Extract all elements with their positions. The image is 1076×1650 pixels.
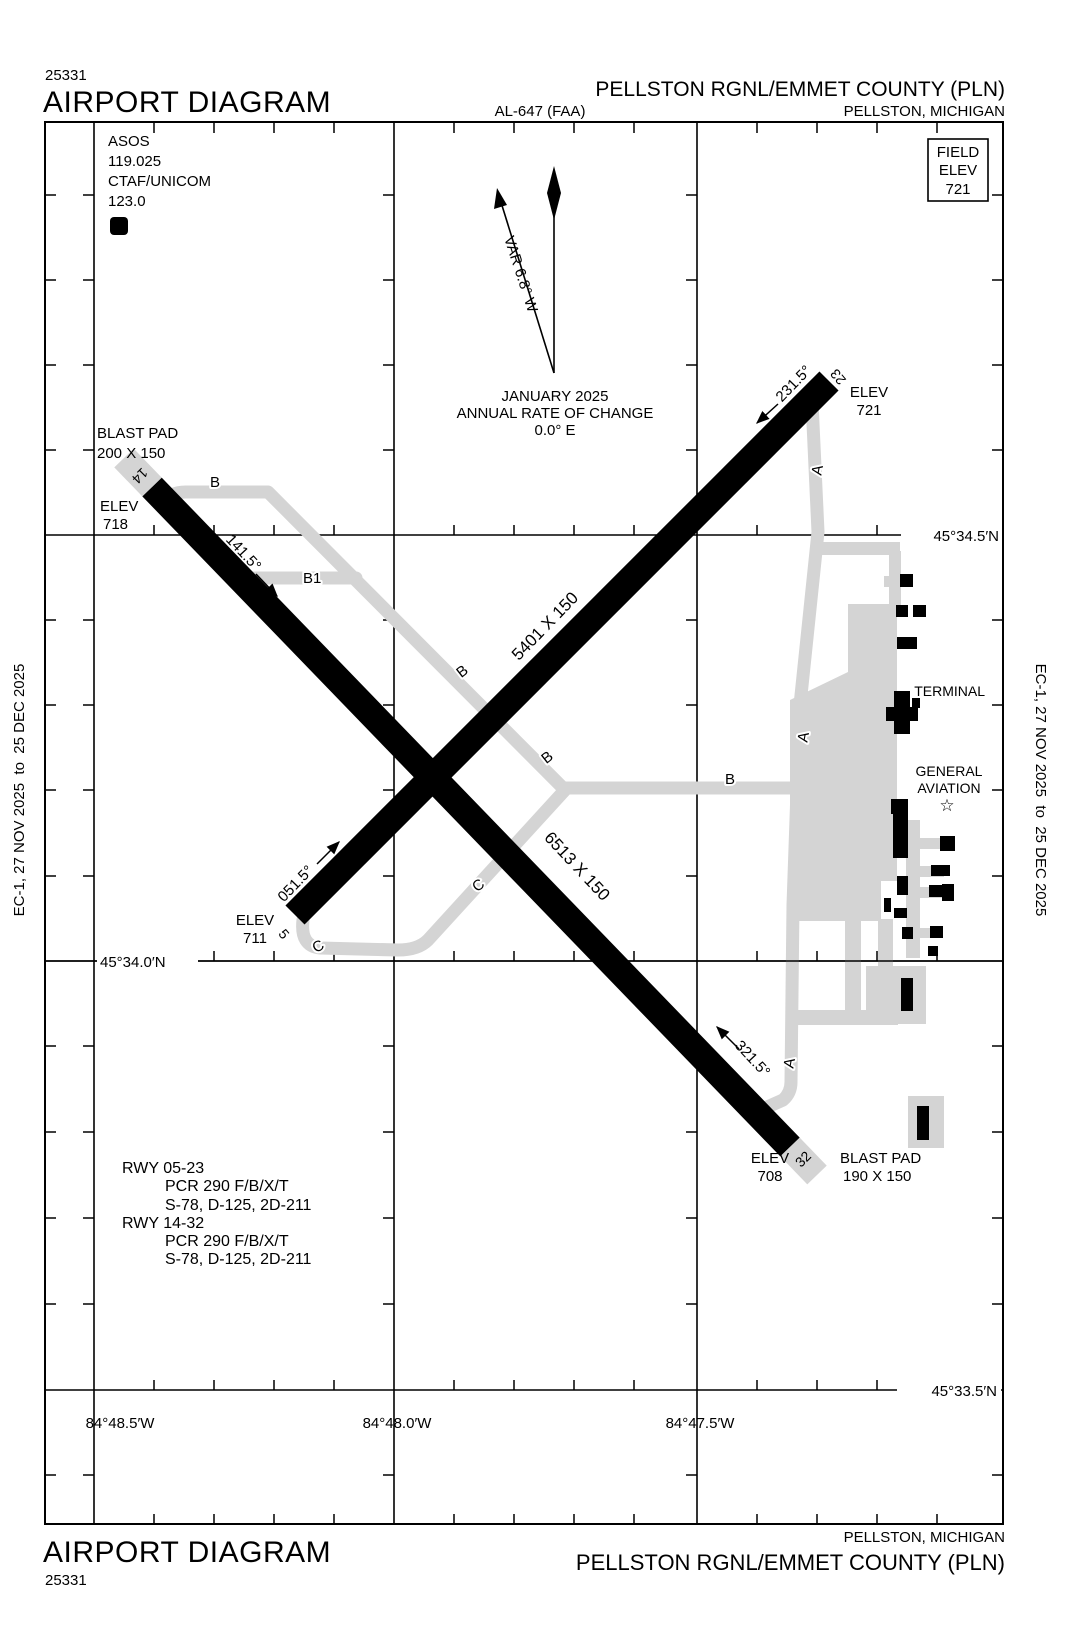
taxiway-b-label: B xyxy=(210,474,220,491)
rate-of-change-value: 0.0° E xyxy=(534,422,575,439)
building xyxy=(894,908,907,918)
ctaf-frequency: 123.0 xyxy=(108,193,146,210)
footer-airport: PELLSTON RGNL/EMMET COUNTY (PLN) xyxy=(576,1550,1005,1575)
building xyxy=(896,605,908,617)
apron-road xyxy=(790,1010,898,1025)
comms-block: ASOS 119.025 CTAF/UNICOM 123.0 D xyxy=(108,133,211,235)
lon-label-48-5: 84°48.5′W xyxy=(86,1415,156,1432)
left-margin-note: EC-1, 27 NOV 2025 to 25 DEC 2025 xyxy=(11,664,28,917)
general-aviation-label-1: GENERAL xyxy=(916,763,983,779)
chart-code: 25331 xyxy=(45,67,87,84)
ctaf-unicom-label: CTAF/UNICOM xyxy=(108,173,211,190)
apron-road xyxy=(845,919,861,1011)
taxiway-labels: A A A B B B B B1 C C xyxy=(210,464,827,1070)
rwy-0523-codes: S-78, D-125, 2D-211 xyxy=(165,1197,312,1214)
field-elev-l2: ELEV xyxy=(939,162,977,179)
blast-pad-14-label: BLAST PAD xyxy=(97,425,178,442)
elev-14-value: 718 xyxy=(103,516,128,533)
procedure-id: AL-647 (FAA) xyxy=(495,103,586,120)
taxiway-a-label: A xyxy=(808,464,826,477)
airport-name: PELLSTON RGNL/EMMET COUNTY (PLN) xyxy=(595,78,1005,101)
building xyxy=(928,946,938,956)
building xyxy=(913,605,926,617)
runway-number-5: 5 xyxy=(275,926,292,942)
rwy-1432-title: RWY 14-32 xyxy=(122,1215,204,1232)
building xyxy=(891,799,908,814)
airport-city: PELLSTON, MICHIGAN xyxy=(844,103,1005,120)
footer-chart-code: 25331 xyxy=(45,1572,87,1589)
apron-road xyxy=(884,576,898,587)
runway-data-block: RWY 05-23 PCR 290 F/B/X/T S-78, D-125, 2… xyxy=(122,1160,312,1268)
apron-road xyxy=(882,639,896,650)
lat-label-34-5: 45°34.5′N xyxy=(933,528,999,545)
page-title: AIRPORT DIAGRAM xyxy=(43,86,331,119)
building xyxy=(917,1106,929,1140)
true-north-arrowhead xyxy=(547,166,561,220)
footer-title: AIRPORT DIAGRAM xyxy=(43,1536,331,1569)
terminal-label: TERMINAL xyxy=(914,683,985,699)
building xyxy=(884,898,891,912)
footer-city: PELLSTON, MICHIGAN xyxy=(844,1529,1005,1546)
general-aviation-label-2: AVIATION xyxy=(917,780,980,796)
building xyxy=(901,978,913,1011)
elev-14-label: ELEV xyxy=(100,498,138,515)
building xyxy=(929,885,942,897)
building xyxy=(930,926,943,938)
lon-label-47-5: 84°47.5′W xyxy=(666,1415,736,1432)
terminal-building xyxy=(912,698,920,708)
taxiway-b xyxy=(166,492,830,788)
field-elev-l1: FIELD xyxy=(937,144,980,161)
field-elev-value: 721 xyxy=(945,181,970,198)
taxiways xyxy=(166,402,830,1108)
runways xyxy=(124,381,829,1175)
asos-frequency: 119.025 xyxy=(108,153,161,170)
rate-of-change-label: ANNUAL RATE OF CHANGE xyxy=(457,405,654,422)
footer: AIRPORT DIAGRAM 25331 PELLSTON, MICHIGAN… xyxy=(43,1529,1005,1589)
magnetic-north-arrowhead xyxy=(494,188,507,209)
building xyxy=(902,927,913,939)
facility-labels: TERMINAL GENERAL AVIATION ☆ xyxy=(914,683,985,815)
rwy-1432-pcr: PCR 290 F/B/X/T xyxy=(165,1233,289,1250)
elev-5-label: ELEV xyxy=(236,912,274,929)
magvar-date: JANUARY 2025 xyxy=(501,388,608,405)
building xyxy=(940,836,955,851)
rwy-1432-codes: S-78, D-125, 2D-211 xyxy=(165,1251,312,1268)
rwy-0523-title: RWY 05-23 xyxy=(122,1160,204,1177)
variation-label: VAR 6.8° W xyxy=(500,234,541,315)
heading-32-arrow xyxy=(717,1027,739,1049)
asos-label: ASOS xyxy=(108,133,150,150)
right-margin-note: EC-1, 27 NOV 2025 to 25 DEC 2025 xyxy=(1032,664,1049,917)
building xyxy=(897,637,917,649)
taxiway-b1-label: B1 xyxy=(303,570,321,587)
star-icon: ☆ xyxy=(939,796,954,815)
blast-pad-32-label: BLAST PAD xyxy=(840,1150,921,1167)
runway-14-32 xyxy=(152,487,790,1147)
elev-32-label: ELEV xyxy=(751,1150,789,1167)
building xyxy=(931,865,950,876)
elev-32-value: 708 xyxy=(757,1168,782,1185)
header: 25331 AIRPORT DIAGRAM AL-647 (FAA) PELLS… xyxy=(43,67,1005,120)
building xyxy=(942,884,954,901)
lat-label-34-0: 45°34.0′N xyxy=(100,954,166,971)
elev-23-value: 721 xyxy=(856,402,881,419)
taxiway-b-label: B xyxy=(725,771,735,788)
lon-label-48-0: 84°48.0′W xyxy=(363,1415,433,1432)
building xyxy=(893,814,908,858)
field-elev-box: FIELD ELEV 721 xyxy=(928,139,988,201)
blast-pad-32-size: 190 X 150 xyxy=(843,1168,911,1185)
building xyxy=(900,574,913,587)
lat-label-33-5: 45°33.5′N xyxy=(931,1383,997,1400)
elev-23-label: ELEV xyxy=(850,384,888,401)
blast-pad-14-size: 200 X 150 xyxy=(97,445,165,462)
airport-diagram-page: 25331 AIRPORT DIAGRAM AL-647 (FAA) PELLS… xyxy=(0,0,1076,1650)
terminal-building xyxy=(886,707,918,721)
building xyxy=(897,876,908,895)
apron-road xyxy=(882,608,896,619)
elev-5-value: 711 xyxy=(243,930,267,947)
airport-diagram: 25331 AIRPORT DIAGRAM AL-647 (FAA) PELLS… xyxy=(0,0,1076,1650)
north-arrows: VAR 6.8° W JANUARY 2025 ANNUAL RATE OF C… xyxy=(457,166,654,439)
rwy-0523-pcr: PCR 290 F/B/X/T xyxy=(165,1178,289,1195)
class-d-letter: D xyxy=(114,219,123,234)
apron-road xyxy=(812,542,900,555)
